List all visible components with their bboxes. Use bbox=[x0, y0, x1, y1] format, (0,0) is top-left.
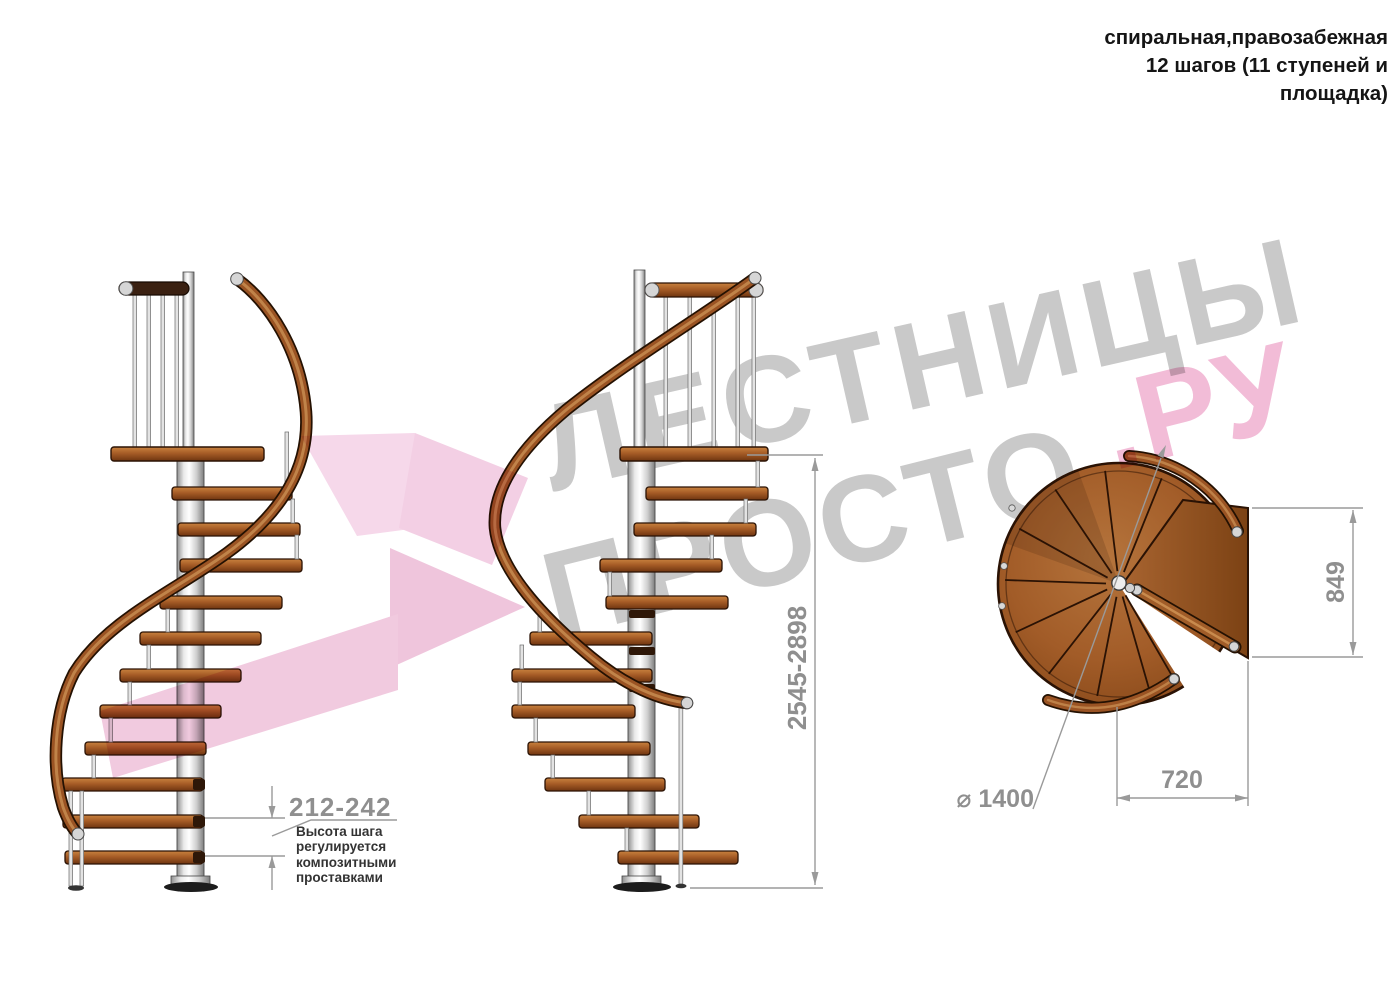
dimension-arrowheads bbox=[269, 445, 1357, 885]
title-line-3: площадка) bbox=[1104, 80, 1388, 108]
dim-total-height: 2545-2898 bbox=[783, 583, 811, 753]
dim-tread-width: 720 bbox=[1147, 766, 1217, 795]
dim-landing-width: 849 bbox=[1322, 548, 1350, 616]
dim-step-height: 212-242 bbox=[289, 792, 391, 823]
step-height-note: Высота шага регулируется композитными пр… bbox=[296, 824, 396, 885]
dim-diameter: ⌀ 1400 bbox=[938, 784, 1034, 814]
dimension-lines bbox=[0, 0, 1400, 1000]
note-line-4: проставками bbox=[296, 870, 396, 885]
note-line-3: композитными bbox=[296, 855, 396, 870]
title-line-2: 12 шагов (11 ступеней и bbox=[1104, 52, 1388, 80]
note-line-2: регулируется bbox=[296, 839, 396, 854]
title-line-1: спиральная,правозабежная bbox=[1104, 24, 1388, 52]
note-line-1: Высота шага bbox=[296, 824, 396, 839]
drawing-title: спиральная,правозабежная 12 шагов (11 ст… bbox=[1104, 24, 1388, 108]
drawing-canvas: ЛЕСТНИЦЫ ПРОСТО bbox=[0, 0, 1400, 1000]
